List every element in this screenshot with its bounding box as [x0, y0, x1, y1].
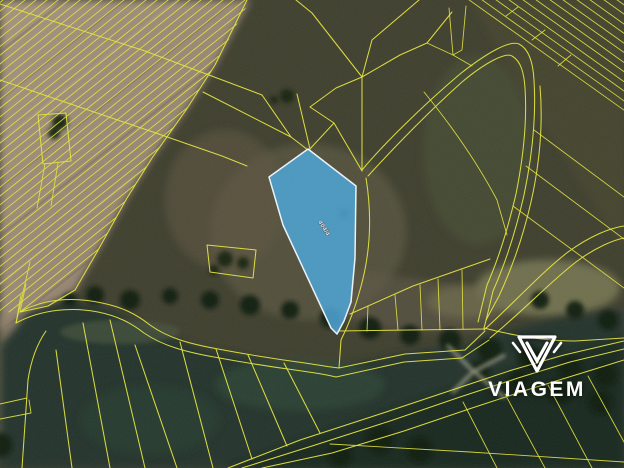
viagem-brand-text: VIAGEM [462, 378, 612, 402]
viagem-watermark: VIAGEM [462, 333, 612, 402]
aerial-map-image[interactable]: 404/4 VIAGEM [0, 0, 624, 468]
viagem-shield-icon [507, 333, 567, 375]
